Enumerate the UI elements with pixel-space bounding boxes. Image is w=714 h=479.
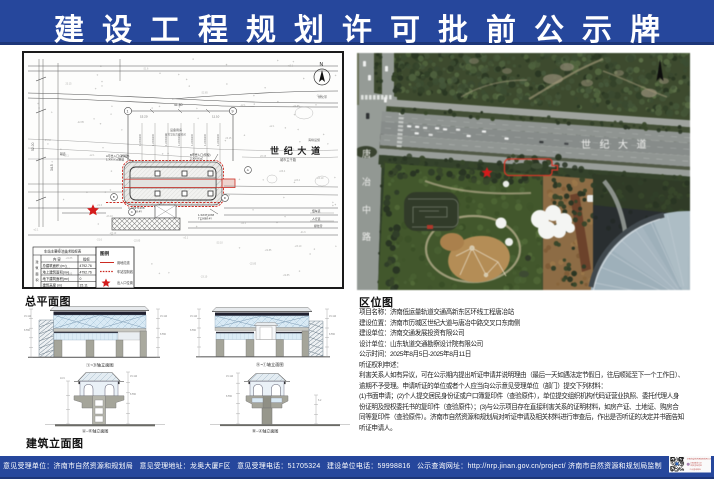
svg-text:-21.6: -21.6 [97,239,103,242]
svg-text:0: 0 [80,277,82,281]
svg-text:冶: 冶 [362,176,371,187]
svg-text:地下建筑面积(m²): 地下建筑面积(m²) [43,276,70,281]
svg-text:车控室综合楼梯间: 车控室综合楼梯间 [165,133,186,137]
svg-text:城市主干路: 城市主干路 [280,157,297,162]
svg-text:建: 建 [36,259,39,264]
svg-text:10.9: 10.9 [60,377,65,380]
svg-text:-x2.1: -x2.1 [33,229,39,232]
svg-text:1-XRD200: 1-XRD200 [138,133,142,146]
svg-text:筑: 筑 [36,265,39,270]
svg-text:-22.85: -22.85 [66,257,73,260]
svg-text:2:XXXX㎡: 2:XXXX㎡ [190,156,203,160]
svg-text:-22.85: -22.85 [265,249,272,252]
svg-text:N: N [320,62,324,68]
svg-text:⑨~①轴立面图: ⑨~①轴立面图 [256,361,284,368]
svg-text:车站主要经济技术指标表: 车站主要经济技术指标表 [44,249,82,254]
svg-text:中: 中 [362,204,371,215]
svg-text:-23.10: -23.10 [216,242,223,245]
svg-text:-22.85: -22.85 [201,92,208,95]
svg-text:15.110: 15.110 [329,315,337,318]
svg-text:-23.10: -23.10 [317,177,324,180]
svg-text:世纪大道: 世纪大道 [581,138,655,151]
svg-text:-21.6: -21.6 [143,68,149,71]
svg-text:图例: 图例 [100,250,110,257]
svg-text:Ⓑ~Ⓐ轴立面图: Ⓑ~Ⓐ轴立面图 [252,428,278,434]
svg-text:建筑高度 (m): 建筑高度 (m) [43,282,63,287]
svg-text:23.15: 23.15 [66,83,73,86]
svg-text:内 容: 内 容 [53,256,61,261]
svg-text:-23.10: -23.10 [106,215,113,218]
svg-text:车站控制线: 车站控制线 [117,269,134,274]
svg-text:15.110: 15.110 [24,315,32,318]
svg-text:-22.85: -22.85 [283,274,290,277]
svg-text:总建筑面积 (m²): 总建筑面积 (m²) [43,263,67,268]
svg-text:41.80: 41.80 [174,103,183,107]
svg-text:-21.6: -21.6 [300,231,306,234]
svg-text:34.5: 34.5 [50,164,54,171]
svg-text:15.110: 15.110 [160,315,168,318]
svg-text:15.110: 15.110 [130,375,138,378]
svg-text:-23.10: -23.10 [295,245,302,248]
svg-text:1:XXXX㎡敷设: 1:XXXX㎡敷设 [106,157,124,161]
svg-text:4792.76: 4792.76 [80,264,92,268]
svg-text:B: B [113,195,115,199]
svg-text:1: 1 [127,110,129,114]
svg-text:8.550: 8.550 [160,333,167,336]
svg-text:9: 9 [232,110,234,114]
svg-text:4792.76: 4792.76 [80,270,92,274]
svg-text:-22.85: -22.85 [133,240,140,243]
svg-text:15.110: 15.110 [226,375,234,378]
svg-text:世纪大道: 世纪大道 [270,145,325,156]
svg-text:路: 路 [362,231,371,242]
svg-text:①~⑨轴立面图: ①~⑨轴立面图 [86,362,114,369]
svg-text:6.2: 6.2 [318,399,322,402]
svg-text:A: A [247,168,249,172]
svg-text:15.110: 15.110 [190,315,198,318]
svg-text:1-XRD200: 1-XRD200 [151,133,155,146]
svg-text:T13X88.4Y: T13X88.4Y [198,216,212,220]
svg-text:面: 面 [36,272,39,276]
svg-text:-x2.1: -x2.1 [241,222,247,225]
svg-text:8.550: 8.550 [226,395,233,398]
svg-text:-22.85: -22.85 [77,121,84,124]
svg-text:唐: 唐 [362,148,371,159]
svg-text:x23.4: x23.4 [279,170,286,173]
svg-text:-23.10: -23.10 [200,275,207,278]
svg-text:人行道: 人行道 [312,217,321,221]
svg-text:绿化带: 绿化带 [318,94,327,99]
svg-text:辅道: 辅道 [60,152,66,156]
svg-text:52.00: 52.00 [31,142,35,151]
svg-text:设备用房: 设备用房 [170,127,182,132]
svg-text:-22.85: -22.85 [249,263,256,266]
svg-text:1-XRD200: 1-XRD200 [190,133,194,146]
svg-text:慢车道: 慢车道 [312,209,321,213]
svg-text:1-XRD200: 1-XRD200 [216,133,220,146]
svg-text:-x2.1: -x2.1 [269,125,275,128]
svg-text:23.15: 23.15 [225,137,232,140]
svg-text:指标: 指标 [83,256,90,261]
svg-text:-21.6: -21.6 [97,204,103,207]
svg-text:海绵设施: 海绵设施 [308,137,320,142]
svg-text:出入口位置: 出入口位置 [117,280,133,285]
svg-text:x23.4: x23.4 [294,179,301,182]
svg-text:地上建筑面积(m²): 地上建筑面积(m²) [43,269,70,274]
svg-text:1-XRD200: 1-XRD200 [203,133,207,146]
svg-text:8.550: 8.550 [329,333,336,336]
svg-text:15.20: 15.20 [140,115,148,119]
svg-text:15.11: 15.11 [80,283,88,287]
svg-text:8.550: 8.550 [130,393,137,396]
svg-text:8.550: 8.550 [24,329,31,332]
svg-text:Ⓐ~Ⓑ轴立面图: Ⓐ~Ⓑ轴立面图 [82,428,108,434]
svg-text:-x2.1: -x2.1 [183,236,189,239]
svg-text:绿化带: 绿化带 [314,224,323,228]
svg-text:11.10: 11.10 [212,115,220,119]
svg-text:积: 积 [36,277,39,282]
svg-text:用地红线: 用地红线 [117,260,131,265]
svg-text:-x2.1: -x2.1 [89,154,95,157]
svg-text:8.550: 8.550 [190,329,197,332]
